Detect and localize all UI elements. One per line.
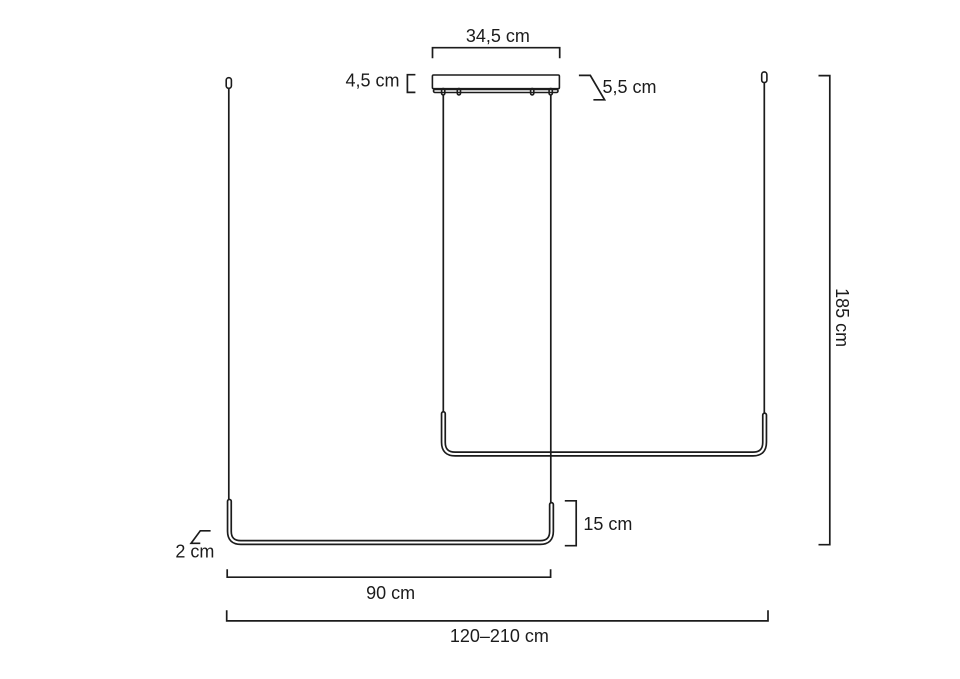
svg-text:2 cm: 2 cm (175, 541, 214, 561)
svg-text:34,5 cm: 34,5 cm (466, 26, 530, 46)
svg-text:4,5 cm: 4,5 cm (345, 70, 399, 90)
svg-text:15 cm: 15 cm (583, 514, 632, 534)
svg-text:120–210 cm: 120–210 cm (450, 626, 549, 646)
svg-text:5,5 cm: 5,5 cm (603, 77, 657, 97)
svg-text:90 cm: 90 cm (366, 583, 415, 603)
svg-text:185 cm: 185 cm (832, 288, 852, 347)
